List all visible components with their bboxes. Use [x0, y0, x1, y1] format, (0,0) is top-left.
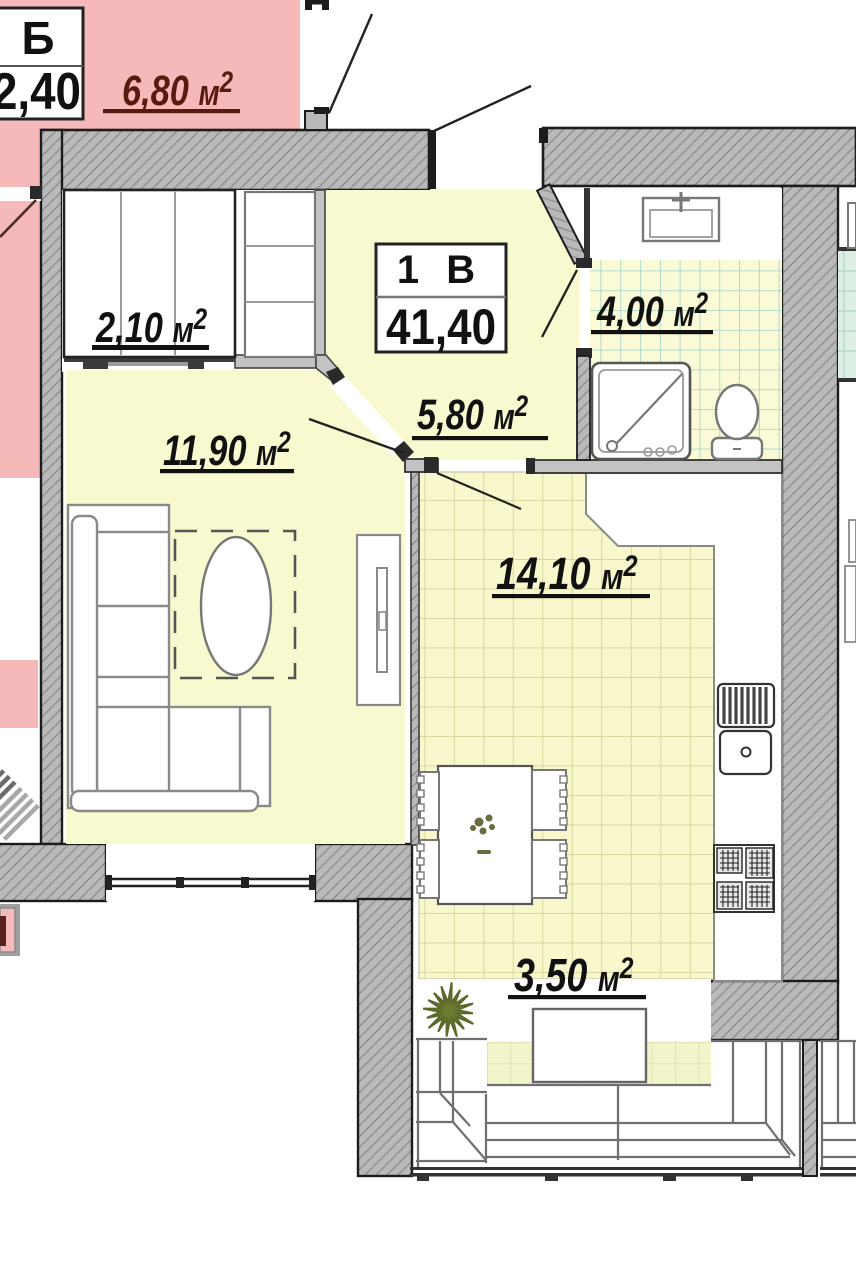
- svg-text:6,80 м2: 6,80 м2: [122, 64, 233, 115]
- svg-text:Б: Б: [21, 12, 54, 64]
- svg-text:5,80 м2: 5,80 м2: [417, 388, 528, 439]
- svg-text:2,10 м2: 2,10 м2: [95, 301, 207, 352]
- svg-text:2,40: 2,40: [0, 63, 81, 120]
- svg-text:4,00 м2: 4,00 м2: [596, 285, 708, 336]
- svg-text:11,90 м2: 11,90 м2: [163, 424, 291, 475]
- svg-text:1 В: 1 В: [397, 248, 483, 292]
- svg-text:41,40: 41,40: [386, 298, 496, 354]
